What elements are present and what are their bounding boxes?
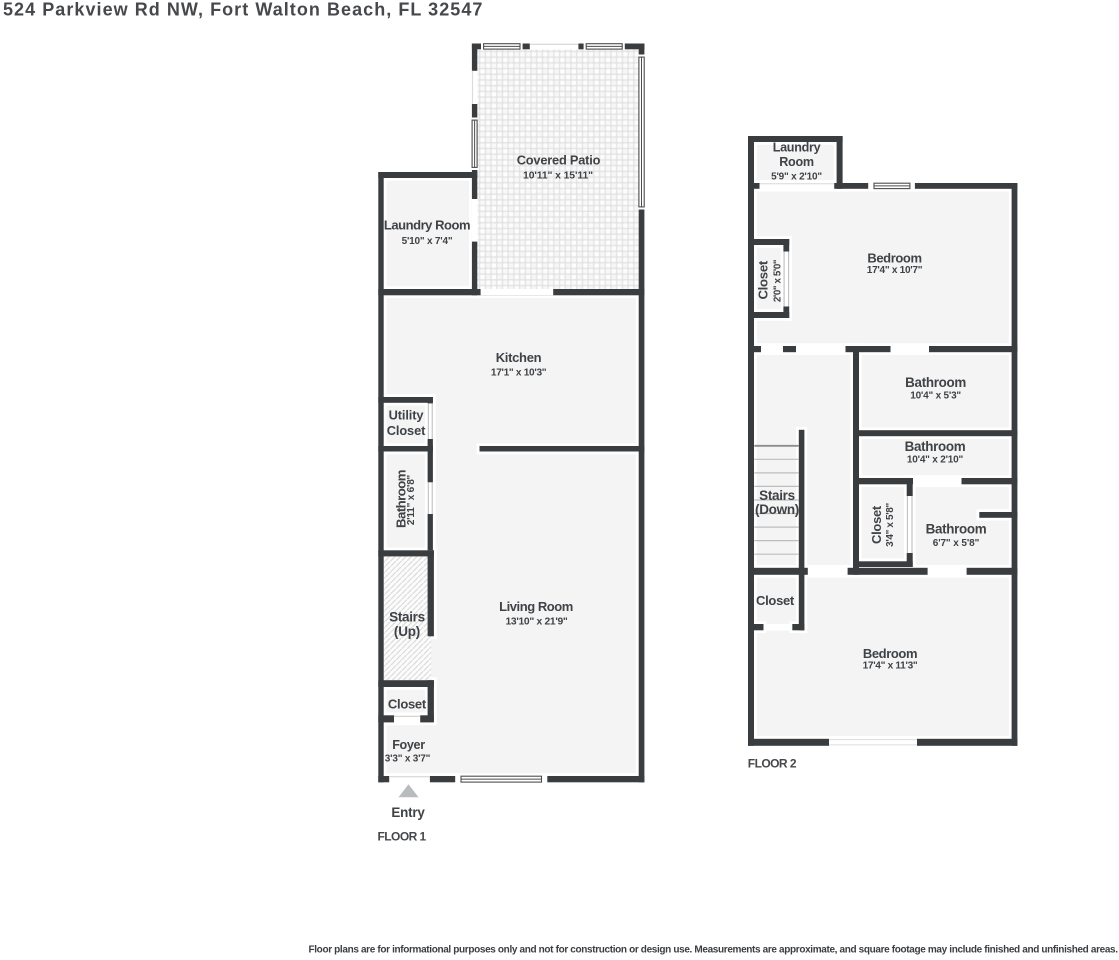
svg-text:Entry: Entry bbox=[391, 805, 425, 820]
svg-text:2'0" x 5'0": 2'0" x 5'0" bbox=[772, 260, 783, 302]
svg-text:Closet: Closet bbox=[388, 697, 427, 712]
svg-text:Laundry Room: Laundry Room bbox=[384, 218, 470, 233]
svg-text:Bedroom: Bedroom bbox=[863, 646, 917, 661]
svg-text:FLOOR 2: FLOOR 2 bbox=[748, 756, 797, 770]
svg-text:Closet: Closet bbox=[387, 423, 426, 438]
svg-text:5'9" x 2'10": 5'9" x 2'10" bbox=[771, 171, 822, 182]
svg-text:Room: Room bbox=[779, 155, 814, 169]
svg-text:Closet: Closet bbox=[755, 260, 770, 299]
svg-text:17'4" x 11'3": 17'4" x 11'3" bbox=[863, 661, 918, 672]
svg-text:2'11" x 6'8": 2'11" x 6'8" bbox=[406, 474, 417, 525]
svg-text:Stairs: Stairs bbox=[389, 610, 425, 625]
svg-text:Laundry: Laundry bbox=[773, 141, 821, 155]
svg-text:17'1" x 10'3": 17'1" x 10'3" bbox=[491, 368, 547, 379]
svg-text:Living Room: Living Room bbox=[499, 599, 573, 614]
svg-text:3'3" x 3'7": 3'3" x 3'7" bbox=[385, 754, 431, 765]
svg-text:6'7" x 5'8": 6'7" x 5'8" bbox=[933, 538, 980, 549]
svg-text:10'11" x 15'11": 10'11" x 15'11" bbox=[523, 171, 593, 182]
svg-text:17'4" x 10'7": 17'4" x 10'7" bbox=[867, 265, 923, 276]
svg-text:Kitchen: Kitchen bbox=[496, 350, 542, 365]
svg-text:Bedroom: Bedroom bbox=[867, 251, 921, 266]
svg-text:Closet: Closet bbox=[869, 505, 884, 544]
svg-text:3'4" x 5'8": 3'4" x 5'8" bbox=[885, 503, 896, 547]
svg-text:10'4" x 5'3": 10'4" x 5'3" bbox=[910, 390, 961, 401]
svg-text:Bathroom: Bathroom bbox=[905, 439, 966, 454]
svg-text:10'4" x 2'10": 10'4" x 2'10" bbox=[907, 454, 964, 465]
svg-text:Utility: Utility bbox=[389, 408, 425, 423]
svg-text:524 Parkview Rd NW, Fort Walto: 524 Parkview Rd NW, Fort Walton Beach, F… bbox=[3, 0, 484, 20]
svg-text:Bathroom: Bathroom bbox=[905, 375, 966, 390]
svg-text:FLOOR 1: FLOOR 1 bbox=[378, 830, 427, 844]
svg-text:Closet: Closet bbox=[756, 593, 795, 608]
svg-text:Floor plans are for informatio: Floor plans are for informational purpos… bbox=[309, 945, 1119, 956]
svg-text:Bathroom: Bathroom bbox=[926, 522, 987, 537]
svg-text:Foyer: Foyer bbox=[392, 738, 425, 752]
svg-text:5'10" x 7'4": 5'10" x 7'4" bbox=[402, 236, 453, 247]
svg-text:Covered Patio: Covered Patio bbox=[517, 153, 601, 168]
svg-text:13'10" x 21'9": 13'10" x 21'9" bbox=[506, 617, 568, 628]
svg-text:(Up): (Up) bbox=[394, 624, 420, 639]
svg-text:(Down): (Down) bbox=[755, 502, 799, 517]
svg-text:Stairs: Stairs bbox=[759, 488, 795, 503]
